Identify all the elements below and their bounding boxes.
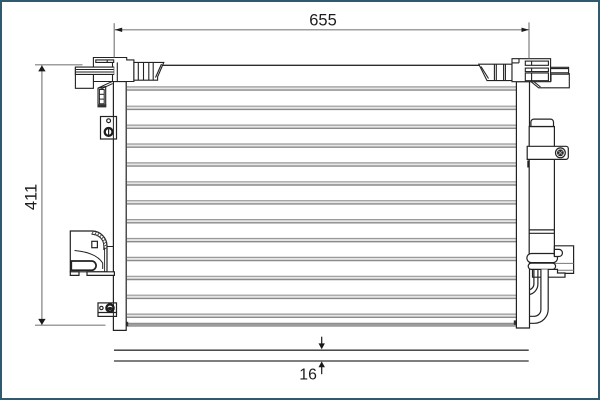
- svg-text:411: 411: [23, 184, 41, 210]
- svg-text:16: 16: [299, 367, 317, 384]
- svg-text:655: 655: [309, 12, 337, 30]
